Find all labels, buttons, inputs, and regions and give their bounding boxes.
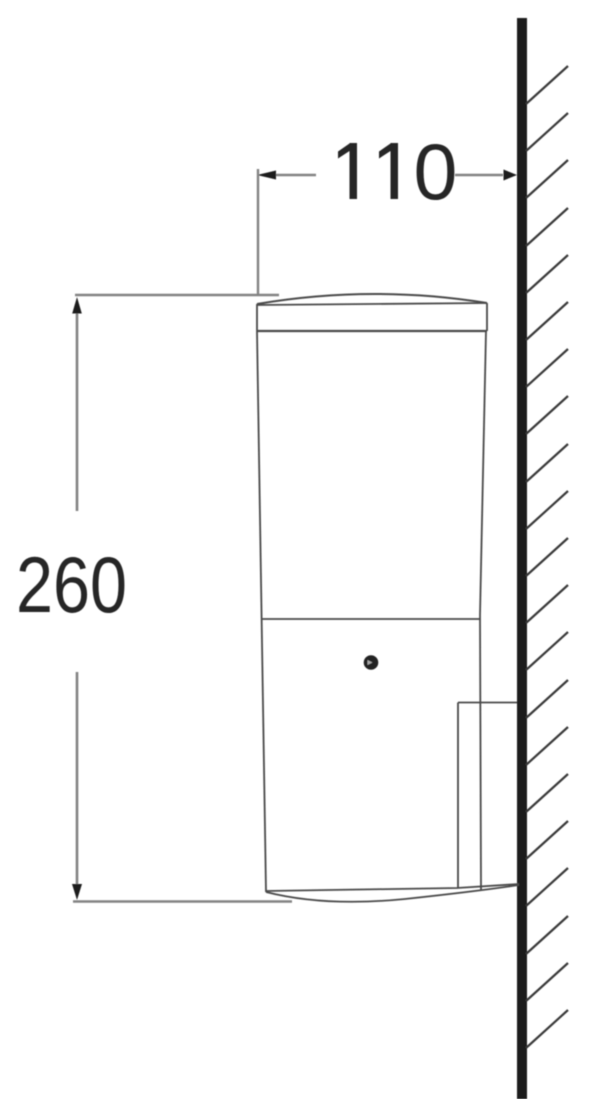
svg-text:0: 0 [414,127,458,216]
svg-text:260: 260 [16,540,127,629]
